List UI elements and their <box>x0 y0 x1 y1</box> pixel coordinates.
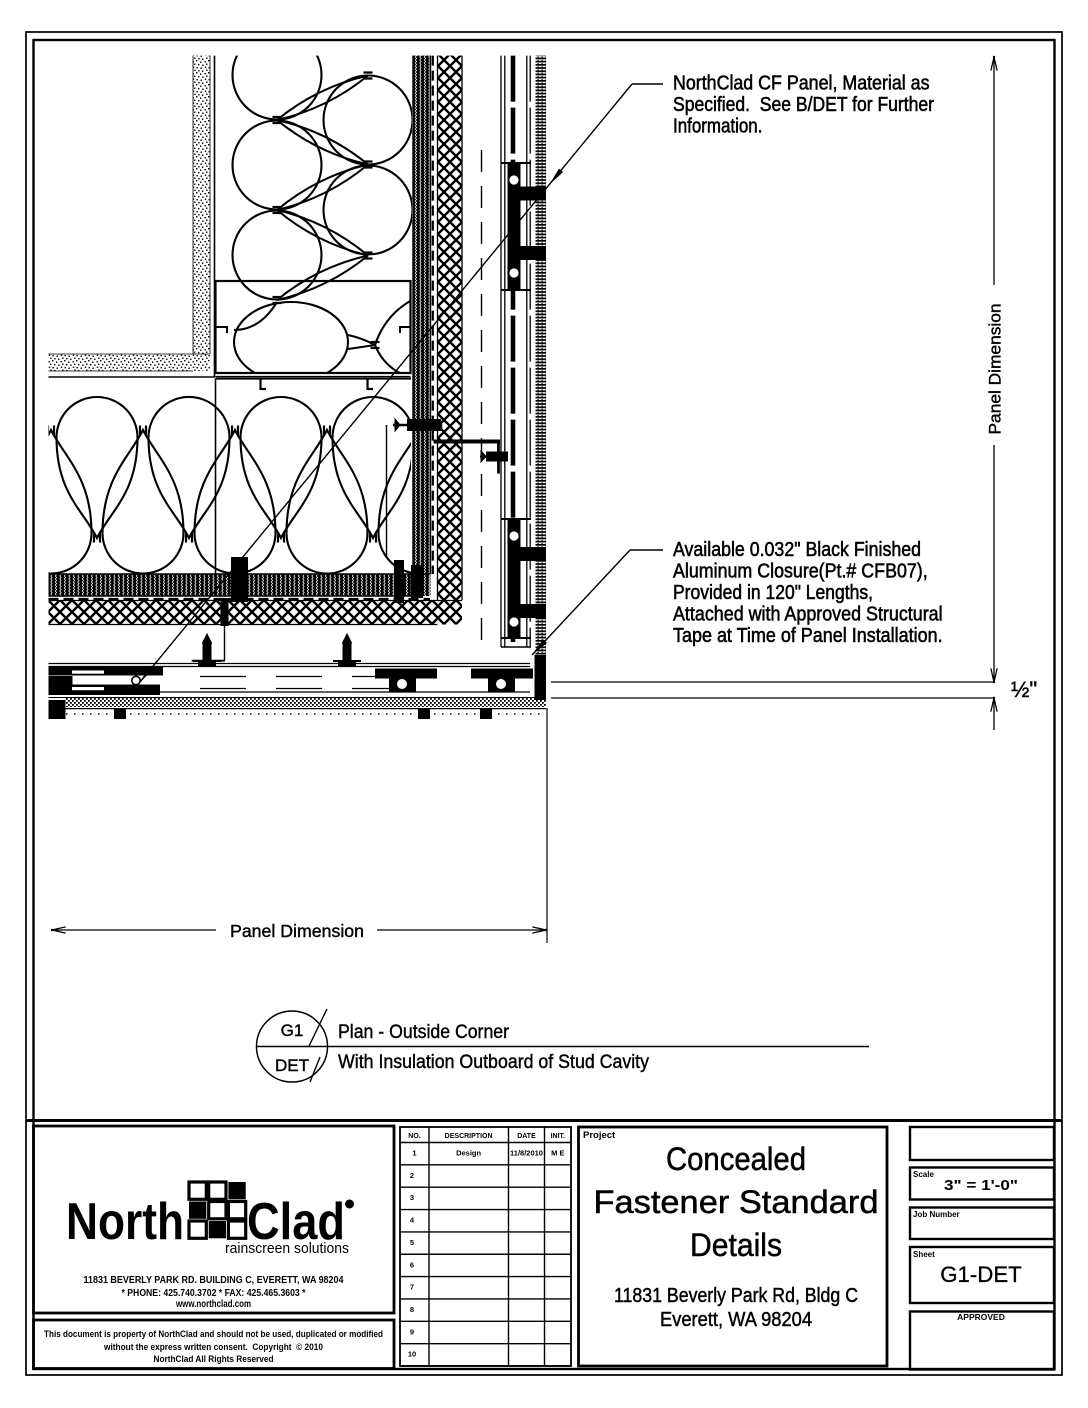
svg-text:Details: Details <box>690 1227 782 1263</box>
svg-text:Panel Dimension: Panel Dimension <box>986 304 1005 435</box>
svg-text:DESCRIPTION: DESCRIPTION <box>445 1133 493 1140</box>
svg-text:Aluminum Closure(Pt.# CFB07),: Aluminum Closure(Pt.# CFB07), <box>673 561 928 583</box>
svg-text:1: 1 <box>412 1149 416 1158</box>
svg-text:11831 BEVERLY PARK RD. BUILDIN: 11831 BEVERLY PARK RD. BUILDING C, EVERE… <box>84 1275 344 1286</box>
svg-text:3: 3 <box>410 1193 414 1202</box>
svg-text:M E: M E <box>551 1149 564 1158</box>
svg-text:This document is property of N: This document is property of NorthClad a… <box>44 1329 383 1339</box>
svg-text:Specified. See B/DET for Furt: Specified. See B/DET for Further <box>673 94 934 116</box>
svg-text:www.northclad.com: www.northclad.com <box>175 1299 251 1310</box>
svg-text:without the express written co: without the express written consent. Cop… <box>103 1342 323 1352</box>
svg-text:11831 Beverly Park Rd, Bldg C: 11831 Beverly Park Rd, Bldg C <box>614 1285 858 1307</box>
svg-text:North: North <box>66 1193 184 1251</box>
svg-text:5: 5 <box>410 1238 414 1247</box>
svg-text:Job Number: Job Number <box>913 1210 960 1219</box>
svg-text:Information.: Information. <box>673 116 762 138</box>
svg-text:9: 9 <box>410 1327 414 1336</box>
svg-text:Provided in 120" Lengths,: Provided in 120" Lengths, <box>673 582 873 604</box>
svg-text:Attached with Approved Structu: Attached with Approved Structural <box>673 604 943 626</box>
svg-text:8: 8 <box>410 1305 414 1314</box>
svg-text:10: 10 <box>408 1350 416 1359</box>
svg-text:G1: G1 <box>281 1021 304 1040</box>
svg-text:Tape at Time of Panel Installa: Tape at Time of Panel Installation. <box>673 625 943 647</box>
svg-text:APPROVED: APPROVED <box>957 1312 1005 1322</box>
svg-text:6: 6 <box>410 1260 414 1269</box>
svg-text:11/8/2010: 11/8/2010 <box>510 1149 543 1158</box>
svg-text:Scale: Scale <box>913 1170 934 1179</box>
svg-text:3" = 1'-0": 3" = 1'-0" <box>944 1177 1018 1194</box>
svg-text:* PHONE: 425.740.3702 * FAX: 4: * PHONE: 425.740.3702 * FAX: 425.465.360… <box>122 1288 306 1299</box>
svg-text:Project: Project <box>583 1130 616 1141</box>
svg-text:NorthClad All Rights Reserved: NorthClad All Rights Reserved <box>154 1354 274 1364</box>
svg-text:Design: Design <box>456 1149 481 1158</box>
svg-text:Concealed: Concealed <box>666 1141 806 1177</box>
svg-text:7: 7 <box>410 1283 414 1292</box>
svg-text:Available 0.032" Black Finishe: Available 0.032" Black Finished <box>673 539 921 561</box>
svg-text:DET: DET <box>275 1056 309 1075</box>
svg-text:Everett, WA 98204: Everett, WA 98204 <box>660 1309 812 1331</box>
svg-text:rainscreen solutions: rainscreen solutions <box>225 1240 349 1257</box>
svg-text:NO.: NO. <box>408 1133 421 1140</box>
svg-text:Fastener Standard: Fastener Standard <box>594 1184 879 1220</box>
svg-text:DATE: DATE <box>517 1133 536 1140</box>
svg-text:G1-DET: G1-DET <box>940 1262 1022 1287</box>
svg-text:Sheet: Sheet <box>913 1250 935 1259</box>
svg-text:Plan - Outside Corner: Plan - Outside Corner <box>338 1022 510 1043</box>
svg-text:Panel Dimension: Panel Dimension <box>230 921 364 941</box>
svg-text:½": ½" <box>1011 677 1037 702</box>
svg-text:NorthClad CF Panel, Material a: NorthClad CF Panel, Material as <box>673 73 930 95</box>
svg-text:INIT.: INIT. <box>551 1133 565 1140</box>
svg-text:With Insulation Outboard of St: With Insulation Outboard of Stud Cavity <box>338 1052 649 1073</box>
svg-text:2: 2 <box>410 1171 414 1180</box>
